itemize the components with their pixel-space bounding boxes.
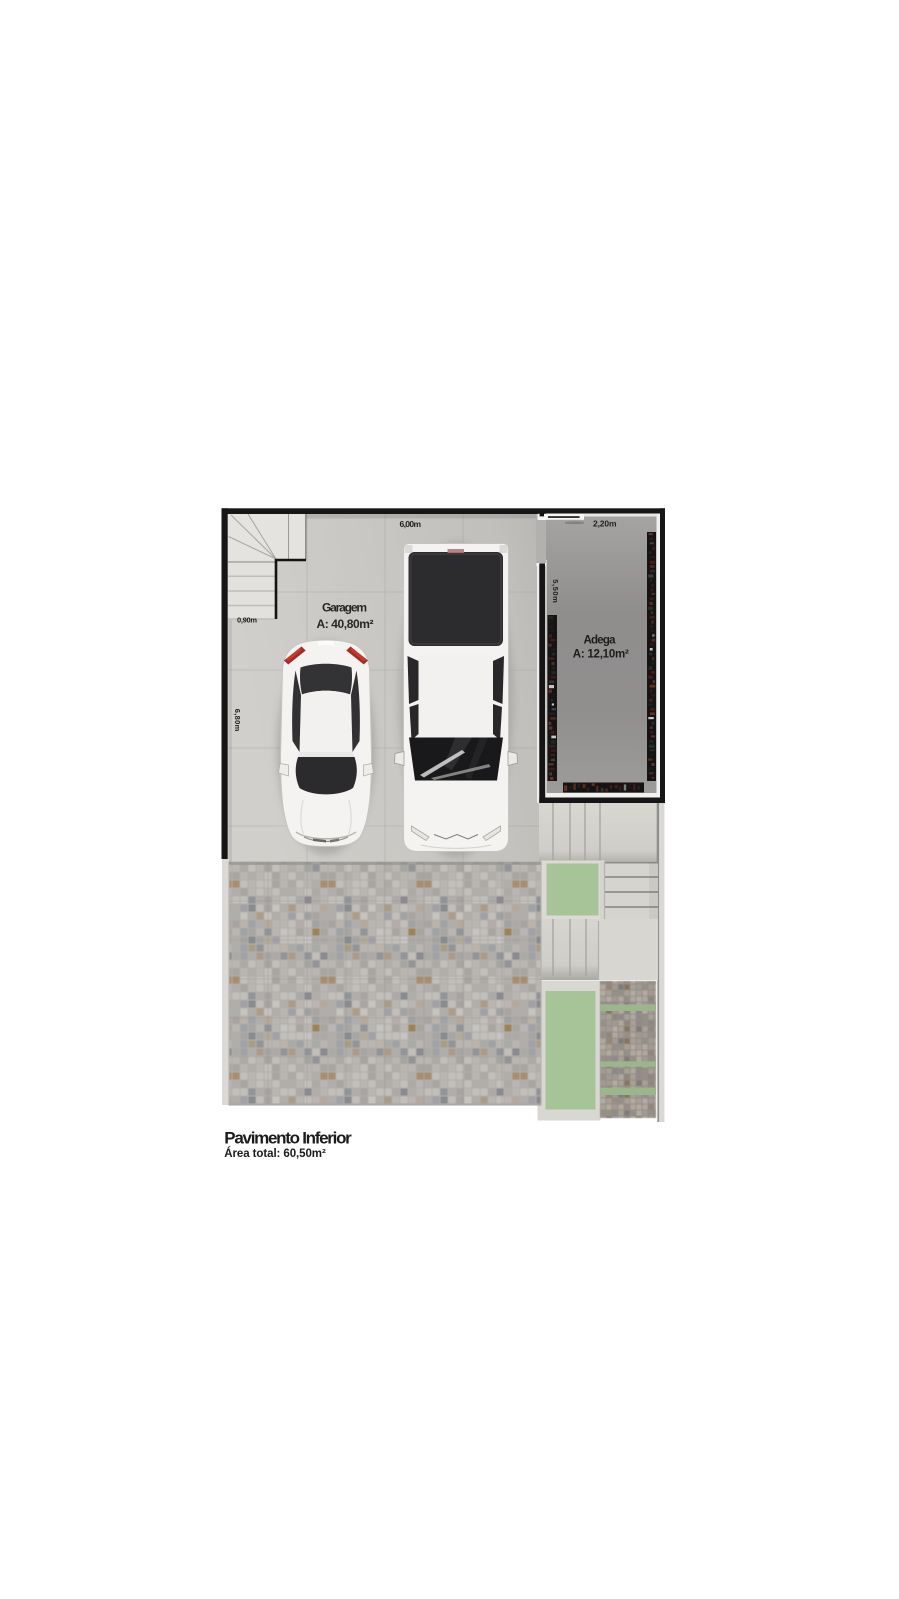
svg-text:6,00m: 6,00m <box>400 519 422 529</box>
svg-text:5,50m: 5,50m <box>551 579 560 603</box>
svg-text:6,80m: 6,80m <box>233 709 242 732</box>
svg-text:Adega: Adega <box>584 635 617 647</box>
svg-text:A: 40,80m²: A: 40,80m² <box>317 617 374 631</box>
svg-text:2,20m: 2,20m <box>593 519 617 529</box>
svg-text:Garagem: Garagem <box>322 601 367 615</box>
svg-text:A: 12,10m²: A: 12,10m² <box>573 649 629 661</box>
svg-text:0,90m: 0,90m <box>237 616 257 625</box>
svg-text:Pavimento Inferior: Pavimento Inferior <box>224 1129 352 1148</box>
svg-text:Área total: 60,50m²: Área total: 60,50m² <box>224 1147 326 1160</box>
